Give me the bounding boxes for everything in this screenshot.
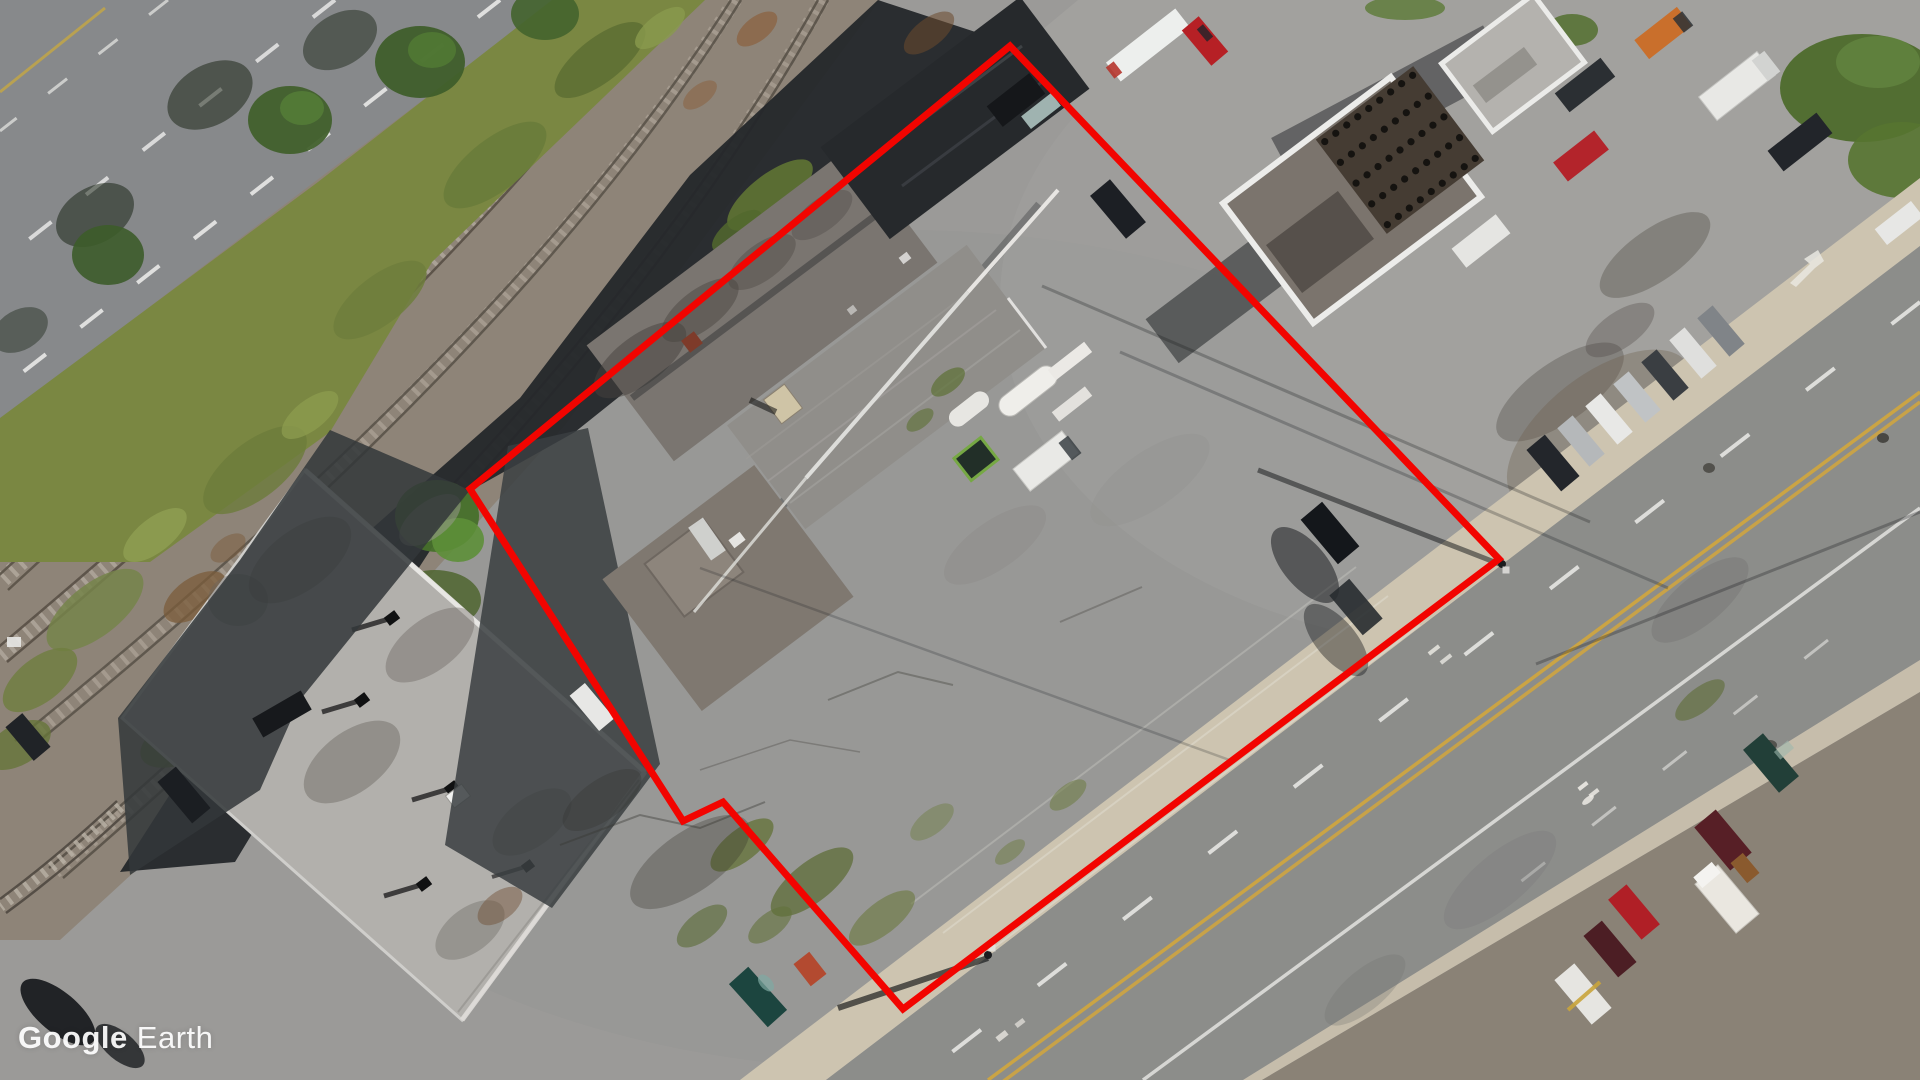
green-strip	[72, 225, 144, 285]
bottom-left-building	[7, 637, 21, 647]
satellite-imagery	[0, 0, 1920, 1080]
watermark: GoogleEarth	[18, 1020, 213, 1056]
poles-and-wires	[984, 951, 992, 959]
poles-and-wires	[1503, 567, 1510, 574]
watermark-google: Google	[18, 1020, 128, 1055]
street	[1703, 463, 1715, 473]
google-earth-viewport: GoogleEarth	[0, 0, 1920, 1080]
green-strip	[280, 91, 324, 125]
upper-right-lot	[1836, 36, 1920, 88]
green-strip	[408, 32, 456, 68]
watermark-earth: Earth	[137, 1020, 214, 1055]
street	[1877, 433, 1889, 443]
